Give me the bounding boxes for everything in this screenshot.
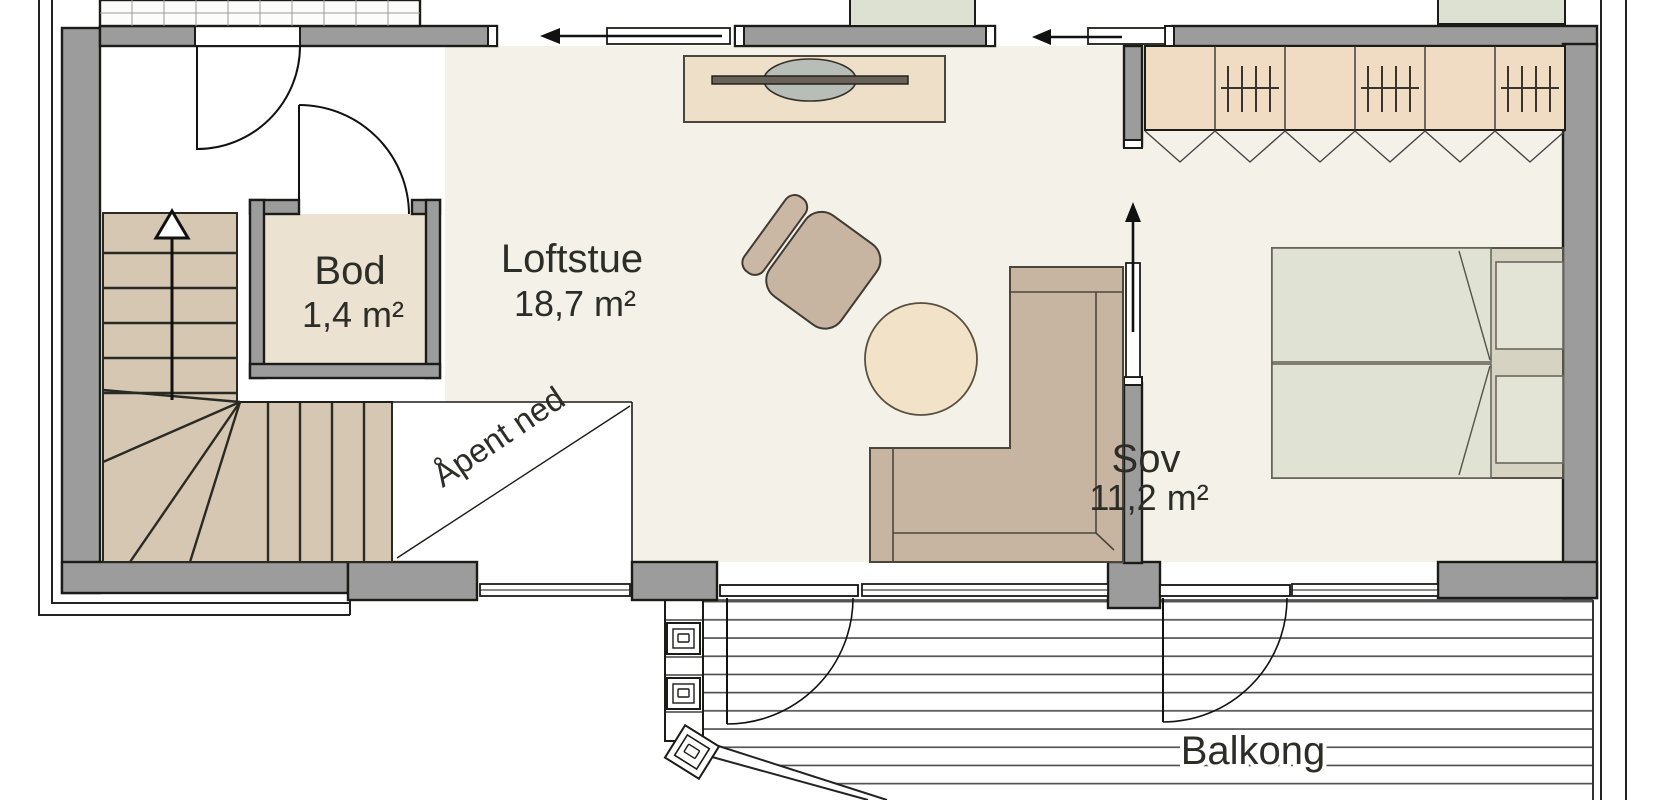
wall-top-3 — [1172, 26, 1597, 46]
deck-boards-icon — [703, 600, 1593, 800]
tv-sideboard-icon — [684, 56, 945, 122]
room-area-loftstue: 18,7 m² — [514, 283, 636, 324]
room-label-loftstue: Loftstue — [501, 237, 643, 281]
cabinets-above-wall — [850, 0, 1565, 26]
room-area-sov: 11,2 m² — [1089, 477, 1208, 518]
duvet — [1272, 364, 1491, 478]
pillow — [1496, 376, 1563, 463]
round-table-icon — [865, 303, 977, 415]
room-label-sov: Sov — [1112, 437, 1181, 481]
duvet — [1272, 248, 1491, 362]
floor-plan: Åpent ned — [0, 0, 1670, 800]
bottom-windows — [480, 584, 1438, 596]
door-opening-landing — [195, 26, 300, 46]
balcony-post-icon — [667, 623, 700, 654]
wall-bottom-left — [62, 562, 348, 593]
room-area-bod: 1,4 m² — [302, 294, 404, 335]
wall-pillar-b — [632, 562, 717, 600]
wall-top-2 — [735, 26, 995, 46]
double-bed-icon — [1272, 248, 1563, 478]
sliding-door-arrow-icon — [1032, 29, 1051, 45]
pillow — [1496, 262, 1563, 349]
wall-pillar-a — [348, 562, 477, 600]
balcony-post-icon — [667, 678, 700, 709]
wall-pillar-c — [1108, 562, 1160, 608]
partition-stub-top — [1124, 46, 1142, 146]
cabinet-icon — [1438, 0, 1565, 24]
sliding-door-arrow-icon — [540, 28, 560, 44]
wall-corner-br — [1438, 562, 1597, 598]
balcony-deck — [694, 600, 1593, 800]
room-label-bod: Bod — [314, 249, 385, 293]
window-icon — [100, 0, 420, 26]
wall-left — [62, 28, 100, 593]
tv-icon — [712, 76, 908, 84]
floor-plan-canvas: Åpent ned — [0, 0, 1670, 800]
room-label-balkong: Balkong — [1181, 729, 1326, 773]
cabinet-icon — [850, 0, 975, 26]
wall-right — [1563, 44, 1597, 598]
